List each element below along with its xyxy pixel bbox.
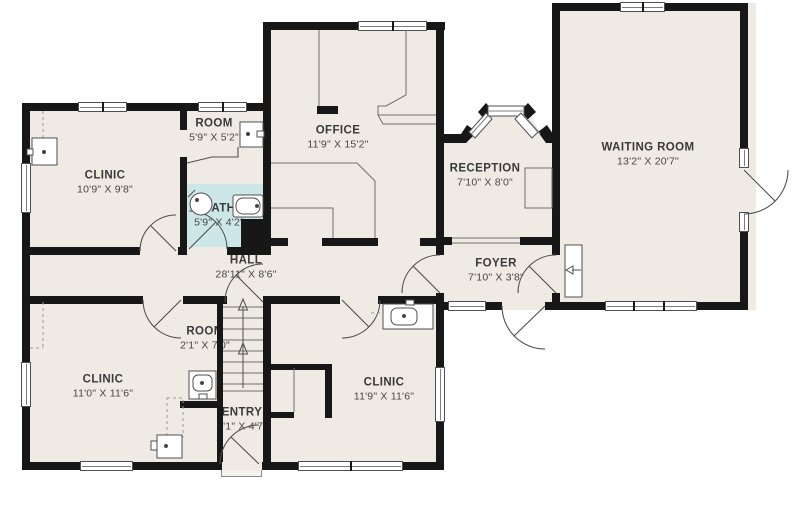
closet-wall: [325, 364, 332, 418]
room-label-foyer: FOYER 7'10" X 3'8": [468, 258, 524, 285]
window: [605, 301, 697, 311]
window: [80, 461, 133, 471]
door-opening: [140, 247, 178, 255]
wall-segment: [217, 296, 223, 462]
floor-plan-canvas: CLINIC 10'9" X 9'8" ROOM 5'9" X 5'2" OFF…: [0, 0, 800, 530]
room-label-office: OFFICE 11'9" X 15'2": [307, 125, 368, 152]
door-opening: [340, 296, 378, 304]
door-opening: [143, 296, 183, 304]
closet-wall: [271, 412, 294, 418]
door-opening: [502, 302, 545, 310]
room-dims: 3'1" X 4'7": [217, 420, 267, 434]
room-label-entry: ENTRY 3'1" X 4'7": [217, 407, 267, 434]
room-dims: 28'11" X 8'6": [215, 268, 276, 282]
door-opening: [187, 247, 227, 255]
room-dims: 10'9" X 9'8": [77, 183, 133, 197]
wall-segment: [263, 296, 271, 462]
window: [358, 21, 427, 31]
window: [739, 148, 749, 168]
window: [620, 2, 665, 12]
room-label-clinic-top-left: CLINIC 10'9" X 9'8": [77, 170, 133, 197]
office-partition-stub: [317, 106, 338, 114]
room-name: RECEPTION: [450, 163, 521, 176]
room-label-clinic-bottom-left: CLINIC 11'0" X 11'6": [73, 374, 133, 401]
room-name: FOYER: [468, 258, 524, 271]
room-dims: 7'10" X 8'0": [450, 176, 521, 190]
room-dims: 5'9" X 5'2": [189, 131, 239, 145]
room-name: CLINIC: [73, 374, 133, 387]
window: [21, 362, 31, 407]
room-name: BATH: [194, 203, 244, 216]
room-label-room-top: ROOM 5'9" X 5'2": [189, 118, 239, 145]
room-label-reception: RECEPTION 7'10" X 8'0": [450, 163, 521, 190]
window: [21, 163, 31, 213]
door-arc: [502, 306, 545, 349]
room-dims: 11'9" X 11'6": [354, 390, 414, 404]
room-dims: 5'9" X 4'2": [194, 216, 244, 230]
wall-segment: [436, 134, 473, 143]
window: [739, 212, 749, 232]
room-name: WAITING ROOM: [602, 142, 695, 155]
wall-segment: [520, 237, 552, 245]
room-label-clinic-bottom-middle: CLINIC 11'9" X 11'6": [354, 377, 414, 404]
room-name: CLINIC: [354, 377, 414, 390]
room-dims: 13'2" X 20'7": [602, 155, 695, 169]
window: [78, 102, 127, 112]
room-dims: 11'0" X 11'6": [73, 387, 133, 401]
door-opening: [288, 238, 322, 246]
window: [448, 301, 486, 311]
room-name: ROOM: [189, 118, 239, 131]
door-opening: [552, 255, 560, 293]
door-opening: [227, 296, 263, 304]
room-dims: 11'9" X 15'2": [307, 138, 368, 152]
room-name: CLINIC: [77, 170, 133, 183]
door-opening: [436, 255, 444, 293]
room-name: OFFICE: [307, 125, 368, 138]
room-name: HALL: [215, 255, 276, 268]
room-label-hall: HALL 28'11" X 8'6": [215, 255, 276, 282]
room-label-bath: BATH 5'9" X 4'2": [194, 203, 244, 230]
chimney-block: [241, 219, 271, 255]
door-opening: [180, 130, 187, 157]
wall-segment: [22, 103, 30, 470]
room-dims: 7'10" X 3'8": [468, 271, 524, 285]
room-name: ENTRY: [217, 407, 267, 420]
window: [435, 367, 445, 422]
room-label-waiting-room: WAITING ROOM 13'2" X 20'7": [602, 142, 695, 169]
window: [298, 461, 403, 471]
door-opening: [740, 168, 748, 214]
wall-segment: [436, 237, 452, 245]
wall-segment: [180, 401, 223, 408]
door-opening: [222, 462, 262, 470]
closet-wall: [271, 364, 332, 370]
window: [198, 102, 247, 112]
door-opening: [378, 238, 420, 246]
